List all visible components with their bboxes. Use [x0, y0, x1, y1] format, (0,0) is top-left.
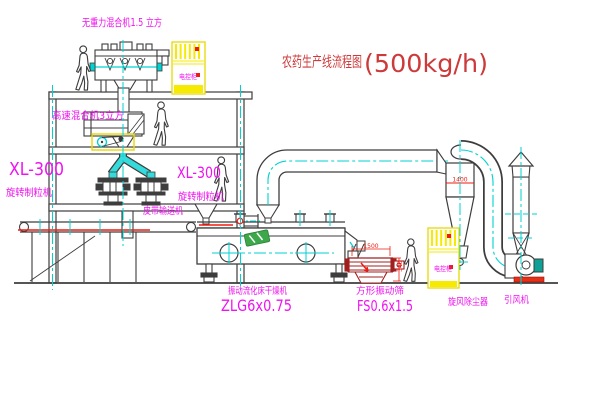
label-high-speed-mixer: 高速混合机3立方 [52, 109, 124, 122]
person-roof [76, 46, 91, 90]
control-cabinet-1 [172, 42, 205, 94]
fan-hub [522, 261, 530, 269]
mixer-side-pipe [157, 50, 169, 56]
person-second-floor [154, 102, 169, 145]
conveyor-pulley [187, 223, 196, 232]
granulator-lug [134, 184, 140, 190]
person-ground [404, 239, 418, 281]
granulator-lug [162, 184, 168, 190]
label-dryer-model: ZLG6x0.75 [221, 296, 292, 315]
dryer-feet [201, 264, 347, 282]
label-granulator-left-model: XL-300 [9, 159, 64, 180]
granulator-inlet [147, 172, 155, 178]
title-capacity: (500kg/h) [364, 49, 488, 78]
dim-sieve-length: 1500 [363, 243, 378, 250]
granulator-inlet [109, 172, 117, 178]
control-cabinet-2 [428, 228, 459, 288]
mixer-shaft-flange [157, 63, 162, 71]
granulator-top-plate [136, 178, 166, 182]
cabinet-bottom-band [430, 281, 457, 287]
induced-draft-fan [505, 254, 544, 282]
label-belt-conveyor: 皮带输送机 [143, 205, 183, 217]
dryer-body [197, 228, 345, 264]
label-fan: 引风机 [504, 294, 529, 306]
square-vibrating-sieve [345, 246, 404, 283]
dryer-feed-stem [203, 218, 209, 224]
label-gravity-mixer: 无重力混合机1.5 立方 [82, 16, 162, 29]
diagram-svg: 农药生产线流程图 (500kg/h) 无重力混合机1.5 立方 高速混合机3立方… [0, 0, 600, 403]
title-zh: 农药生产线流程图 [282, 54, 362, 71]
granulator-base [108, 195, 118, 202]
dim-sieve-height: 340 [397, 260, 404, 272]
indicator-light [195, 47, 199, 51]
granulator-base [146, 195, 156, 202]
cyclone-inlet-reducer [437, 150, 446, 174]
granulator-body [103, 182, 123, 192]
belt-conveyor [18, 219, 196, 282]
label-granulator-center-name: 旋转制粒机 [178, 190, 224, 203]
granulator-lug [124, 184, 130, 190]
label-granulator-center-model: XL-300 [177, 163, 221, 182]
dryer-top-stubs [234, 210, 336, 226]
sieve-end-block [345, 259, 349, 271]
granulator-left [96, 172, 130, 205]
mixer-nozzle [102, 44, 108, 50]
granulators [96, 172, 168, 205]
y-duct-cyan [123, 158, 149, 174]
label-cyclone: 旋风除尘器 [448, 296, 488, 308]
duct-body [257, 150, 437, 205]
granulator-lug [96, 184, 102, 190]
mixer-nozzle [137, 44, 143, 50]
granulator-downpipe [122, 211, 133, 238]
duct-stem [265, 218, 271, 223]
y-duct [111, 153, 149, 174]
granulator-foot [104, 202, 122, 205]
granulator-foot [142, 202, 160, 205]
granulator-right [134, 172, 168, 205]
label-granulator-left-name: 旋转制粒机 [6, 186, 52, 199]
fan-motor [534, 259, 543, 272]
mixer-nozzle [146, 44, 152, 50]
label-cabinet-1: 电控柜 [179, 72, 197, 81]
mixer-body [95, 50, 157, 80]
label-sieve-model: FS0.6x1.5 [357, 297, 413, 315]
conveyor-legs [30, 232, 136, 282]
hsm-drive-center [101, 141, 103, 143]
indicator-light [447, 234, 451, 238]
floor-slab-top [49, 92, 252, 99]
gravity-free-mixer [90, 42, 169, 114]
fluid-bed-dryer [195, 204, 365, 282]
conveyor-brace [30, 236, 95, 281]
mixer-center-port [120, 42, 132, 50]
cabinet-bottom-band [174, 85, 203, 93]
cad-flow-diagram: 农药生产线流程图 (500kg/h) 无重力混合机1.5 立方 高速混合机3立方… [0, 0, 600, 403]
label-cabinet-2: 电控柜 [434, 264, 452, 273]
label-sieve-name: 方形振动筛 [356, 285, 404, 297]
floor-slab-mid [49, 147, 244, 154]
sieve-inlet-box [348, 251, 358, 258]
granulator-body [141, 182, 161, 192]
fan-base [514, 277, 544, 282]
duct-reducer [257, 205, 279, 218]
exhaust-elbow-duct [257, 150, 448, 223]
mixer-nozzle [111, 44, 117, 50]
mixer-side-pipe-drop [162, 56, 168, 65]
dim-cyclone: 1400 [452, 177, 467, 184]
